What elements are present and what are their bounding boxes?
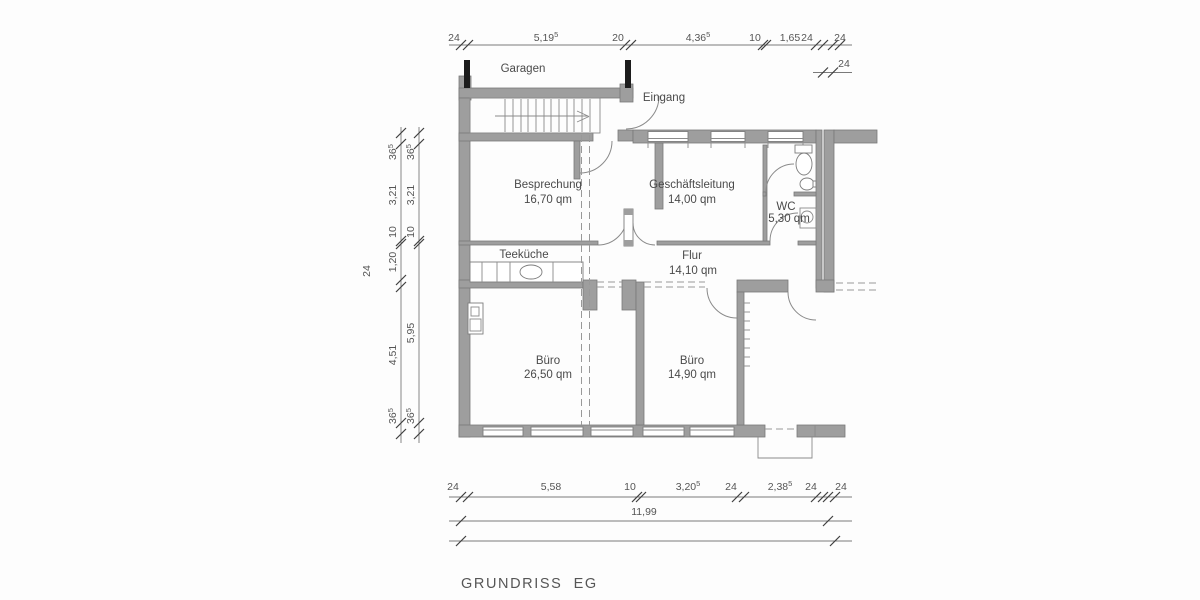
dim-top-5: 1,65 [780,32,801,44]
dim-left-inner-1: 3,21 [405,185,417,206]
svg-text:2,385: 2,385 [768,479,793,493]
window-icon [690,427,734,436]
svg-text:365: 365 [404,144,417,160]
svg-text:24: 24 [805,481,817,493]
dim-left-outer-0: 36 [387,148,399,160]
room-area: 16,70 qm [524,194,572,206]
double-door-right-arc-icon [633,223,655,245]
dim-left-outer-3: 1,20 [387,252,399,273]
svg-text:5,58: 5,58 [541,481,562,493]
entrance-label: Eingang [643,92,685,104]
room-teekueche-label: Teeküche [499,249,548,261]
stair-outline [470,98,600,133]
dim-left-inner-2: 10 [405,226,417,238]
geschaeftsleitung-west-wall [655,143,663,209]
svg-text:1,65: 1,65 [780,32,801,44]
svg-text:24: 24 [835,481,847,493]
svg-text:24: 24 [725,481,737,493]
dim-top-1: 5,19 [534,32,555,44]
exterior-wall-east [816,130,822,288]
flur-north-wall-east [798,241,816,245]
window-icon [591,427,633,436]
room-besprechung: Besprechung 16,70 qm [514,179,582,206]
dim-top-6: 24 [801,32,813,44]
svg-text:3,21: 3,21 [405,185,417,206]
svg-text:3,205: 3,205 [676,479,701,493]
windows-north [648,132,803,149]
window-icon [648,132,688,142]
svg-text:3,21: 3,21 [387,185,399,206]
svg-text:5,195: 5,195 [534,30,559,44]
double-door-mullion-cap [624,209,633,215]
garage-column-right [625,60,631,88]
entry-corner-wall [618,130,633,141]
room-area: 26,50 qm [524,369,572,381]
dim-top-0: 24 [448,32,460,44]
svg-text:11,99: 11,99 [631,506,657,518]
svg-text:10: 10 [749,32,761,44]
dim-left-outer-1: 3,21 [387,185,399,206]
besprechung-south-wall [459,241,598,245]
dim-top-7: 24 [834,32,846,44]
buero-klein-east-wall [737,292,744,425]
flur-mid-pier [622,280,636,310]
svg-text:5,95: 5,95 [405,323,417,344]
garage-column-left [464,60,470,88]
dim-bottom-2: 10 [624,481,636,493]
dim-bottom-4: 24 [725,481,737,493]
staircase [470,98,600,133]
dim-top-3: 4,36 [686,32,707,44]
dim-left-outer-6: 36 [387,412,399,424]
room-name: Flur [682,250,702,262]
svg-text:4,365: 4,365 [686,30,711,44]
buero-klein-door-arc-icon [707,288,737,318]
dim-left-outer-4: 24 [361,265,373,277]
wc-inner-door-arc-icon [766,164,794,192]
room-name: Geschäftsleitung [649,179,735,191]
svg-text:4,51: 4,51 [387,345,399,366]
drawing-title: GRUNDRISS EG [461,576,598,592]
windows-south [483,427,734,436]
neighbor-wall-east [824,130,834,292]
svg-text:10: 10 [387,226,399,238]
dim-left-inner-3: 5,95 [405,323,417,344]
wc-partition-stub [763,192,766,196]
washbasin-icon [800,178,814,190]
double-door-left-arc-icon [598,216,627,245]
room-name: WC [776,201,795,213]
terrace-door-arc-icon [788,292,816,320]
dim-left-outer-5: 4,51 [387,345,399,366]
dim-top-2: 20 [612,32,624,44]
stair-treads [505,99,590,132]
room-wc: WC 5,30 qm [768,201,810,225]
double-door-mullion-cap [624,240,633,246]
kitchen-sink-icon [520,265,542,279]
flur-north-wall [657,241,770,245]
dimension-chain-bottom: 24 5,58 10 3,205 24 2,385 24 24 11,99 [447,479,852,546]
garden-wall-southeast [797,425,845,437]
dim-left-inner-0: 36 [405,148,417,160]
southeast-corner-wall [816,280,834,292]
garage-label: Garagen [501,63,546,75]
room-name: Besprechung [514,179,582,191]
dim-bottom-1: 5,58 [541,481,562,493]
dim-top-4: 10 [749,32,761,44]
room-area: 14,00 qm [668,194,716,206]
window-icon [768,132,803,142]
toilet-bowl-icon [796,153,812,175]
dim-left-outer-2: 10 [387,226,399,238]
dim-top-offset: 24 [838,58,850,70]
svg-text:10: 10 [624,481,636,493]
window-icon [643,427,684,436]
dim-bottom-3: 3,20 [676,481,697,493]
dim-bottom-total: 11,99 [631,506,657,518]
dim-bottom-7: 24 [835,481,847,493]
svg-text:365: 365 [386,408,399,424]
window-icon [711,132,745,142]
svg-text:365: 365 [386,144,399,160]
entry-west-stub-wall [574,141,580,179]
flur-south-wall-east [737,280,788,292]
room-area: 5,30 qm [768,213,810,225]
dim-left-inner-4: 36 [405,412,417,424]
dim-bottom-5: 2,38 [768,481,789,493]
wc-partition-wall [794,192,816,196]
svg-text:24: 24 [361,265,373,277]
room-buero-gross: Büro 26,50 qm [524,355,572,381]
washbasin-tap-icon [813,181,816,187]
svg-text:1,20: 1,20 [387,252,399,273]
room-flur: Flur 14,10 qm [669,250,717,277]
room-area: 14,10 qm [669,265,717,277]
svg-text:24: 24 [838,58,850,70]
svg-text:24: 24 [834,32,846,44]
svg-text:20: 20 [612,32,624,44]
svg-text:24: 24 [447,481,459,493]
svg-text:365: 365 [404,408,417,424]
room-name: Büro [536,355,560,367]
svg-text:24: 24 [448,32,460,44]
buero-divider-wall [636,282,644,425]
dim-bottom-6: 24 [805,481,817,493]
garage-front-wall [459,88,633,98]
dimension-chain-left: 365 3,21 10 1,20 24 4,51 365 365 3,21 10… [361,127,424,443]
window-icon [531,427,583,436]
floor-plan-canvas: Garagen Eingang Besprechung 16,70 qm Ges… [0,0,1200,600]
exterior-step [758,437,812,458]
east-wall-hatch-ticks [744,303,750,366]
svg-text:24: 24 [801,32,813,44]
exterior-wall-west [459,98,470,437]
dim-bottom-0: 24 [447,481,459,493]
room-area: 14,90 qm [668,369,716,381]
neighbor-wall-stub [834,130,877,143]
window-icon [483,427,523,436]
room-buero-klein: Büro 14,90 qm [668,355,716,381]
floor-plan-drawing: Garagen Eingang Besprechung 16,70 qm Ges… [0,0,1200,600]
toilet-tank-icon [795,145,812,153]
stair-arrow-icon [577,117,589,123]
besprechung-door-arc-icon [580,141,612,173]
svg-text:10: 10 [405,226,417,238]
stair-south-wall [459,133,593,141]
room-name: Büro [680,355,704,367]
